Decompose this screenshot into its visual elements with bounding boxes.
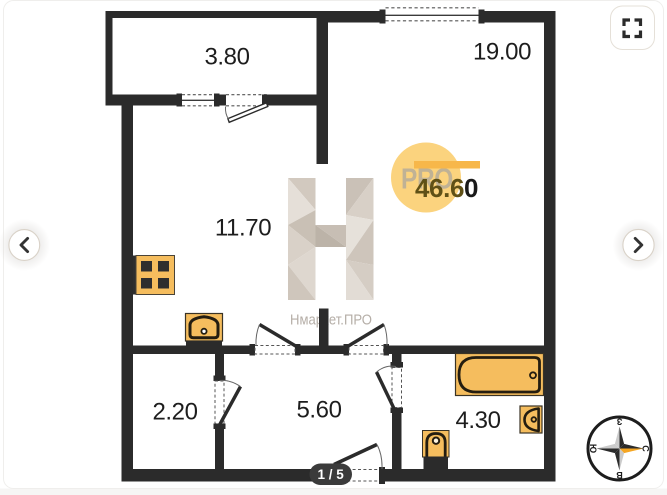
svg-text:Нмаркет.ПРО: Нмаркет.ПРО [290,313,372,329]
svg-text:С: С [640,445,650,452]
svg-text:19.00: 19.00 [473,39,531,66]
svg-text:5.60: 5.60 [296,397,341,424]
svg-text:В: В [616,470,623,480]
svg-text:3.80: 3.80 [204,44,249,71]
svg-text:Ю: Ю [588,444,598,453]
svg-text:11.70: 11.70 [215,215,271,242]
svg-text:З: З [616,417,622,427]
svg-text:1 / 5: 1 / 5 [318,467,345,482]
svg-text:2.20: 2.20 [152,399,197,426]
svg-text:46.60: 46.60 [415,173,478,203]
svg-text:4.30: 4.30 [455,407,500,434]
